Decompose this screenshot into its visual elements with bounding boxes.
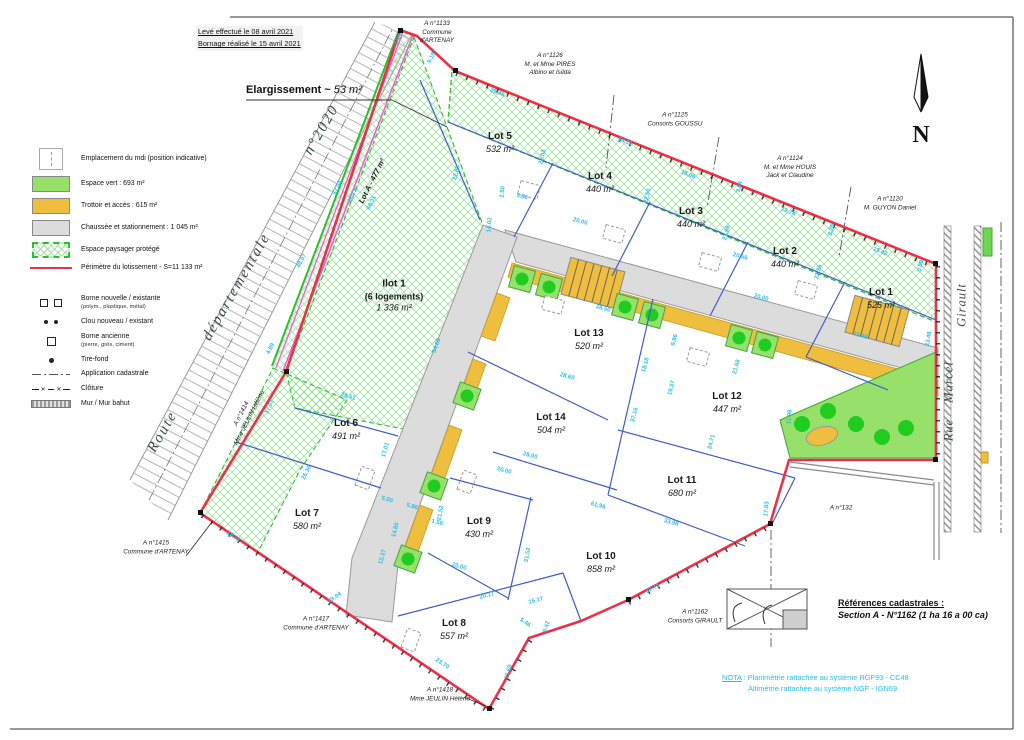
- legend-item-chaussee: Chaussée et stationnement : 1 045 m²: [30, 220, 230, 236]
- lot-label: Lot 6491 m²: [332, 418, 360, 442]
- clou-icon: [30, 320, 72, 324]
- mur-icon: [30, 400, 72, 408]
- legend: Emplacement du mdi (position indicative)…: [30, 148, 230, 408]
- dimension-label: 2.50: [500, 186, 507, 198]
- neighbor-parcel-label: A n°1162Consorts GIRAULT: [668, 608, 723, 625]
- elargissement-bold: Elargissement ~: [246, 84, 331, 96]
- tirefond-icon: [30, 358, 72, 363]
- legend-item-clou: Clou nouveau / existant: [30, 318, 230, 327]
- lot-label: Lot 2440 m²: [771, 246, 799, 270]
- lot-label: Lot 5532 m²: [486, 131, 514, 155]
- lot-label: Lot 7580 m²: [293, 508, 321, 532]
- mdi-swatch-icon: [39, 148, 63, 170]
- legend-item-trottoir: Trottoir et accès : 615 m²: [30, 198, 230, 214]
- lot-label: Lot 13520 m²: [574, 328, 603, 352]
- lot-label: Lot 4440 m²: [586, 171, 614, 195]
- legend-item-cloture: ✕✕ Clôture: [30, 385, 230, 394]
- lot-label: Lot 14504 m²: [536, 412, 565, 436]
- neighbor-parcel-label: A n°1120M. GUYON Daniel: [864, 195, 916, 212]
- elargissement-label: Elargissement ~ 53 m²: [246, 84, 362, 96]
- buildings: [727, 589, 807, 629]
- street-label-rue: Marcel: [942, 361, 957, 403]
- legend-item-paysager: Espace paysager protégé: [30, 242, 230, 258]
- gray-swatch-icon: [32, 220, 70, 236]
- lot-label: Lot 10858 m²: [586, 551, 615, 575]
- cadastral-references: Références cadastrales : Section A - N°1…: [838, 598, 988, 620]
- lot-label: Lot 3440 m²: [677, 206, 705, 230]
- protected-swatch-icon: [32, 242, 70, 258]
- lot-label: Lot 11680 m²: [668, 475, 697, 499]
- lot-label: Lot 1525 m²: [867, 287, 895, 311]
- north-arrow-icon: [914, 54, 928, 112]
- green-swatch-icon: [32, 176, 70, 192]
- lot-label: Lot 8557 m²: [440, 618, 468, 642]
- neighbor-parcel-label: A n°132: [830, 505, 853, 514]
- elargissement-area: 53 m²: [331, 84, 362, 96]
- references-title: Références cadastrales :: [838, 598, 988, 608]
- neighbor-parcel-label: A n°1415Commune d'ARTENAY: [123, 539, 189, 556]
- neighbor-parcel-label: A n°1418Mme JEULIN Hélène: [410, 686, 470, 703]
- lot-label: Lot 9430 m²: [465, 516, 493, 540]
- legend-item-application: Application cadastrale: [30, 370, 230, 379]
- red-line-icon: [30, 267, 72, 269]
- cloture-line-icon: ✕✕: [30, 386, 72, 393]
- street-label-rue: Rue: [942, 419, 957, 441]
- survey-note-line1: Levé effectué le 08 avril 2021: [196, 26, 303, 38]
- legend-item-perimetre: Périmètre du lotissement - S=11 133 m²: [30, 264, 230, 273]
- legend-item-borne-nouvelle: Borne nouvelle / existante(polym., plast…: [30, 295, 230, 312]
- cadastre-line-icon: [30, 374, 72, 375]
- plan-sheet: Levé effectué le 08 avril 2021 Bornage r…: [0, 0, 1024, 740]
- nota-note: NOTA : Planimétrie rattachée au système …: [722, 672, 909, 695]
- street-label-rue: Girault: [955, 283, 970, 327]
- borne-ancienne-icon: [30, 337, 72, 346]
- references-line: Section A - N°1162 (1 ha 16 a 00 ca): [838, 610, 988, 620]
- survey-note-line2: Bornage réalisé le 15 avril 2021: [196, 38, 303, 50]
- borne-nouvelle-icon: [30, 299, 72, 307]
- lot-label: Lot 12447 m²: [712, 391, 741, 415]
- legend-item-espace-vert: Espace vert : 693 m²: [30, 176, 230, 192]
- lot-label: Ilot 1(6 logements)1 336 m²: [365, 279, 424, 314]
- legend-item-mdi: Emplacement du mdi (position indicative): [30, 148, 230, 170]
- neighbor-parcel-label: A n°1126M. et Mme PIRESAlbino et Isilda: [524, 52, 575, 78]
- legend-item-tirefond: Tire-fond: [30, 356, 230, 365]
- north-label: N: [912, 122, 929, 149]
- yellow-swatch-icon: [32, 198, 70, 214]
- legend-item-mur: Mur / Mur bahut: [30, 400, 230, 409]
- neighbor-parcel-label: A n°1133Communed'ARTENAY: [420, 20, 454, 46]
- nota-label: NOTA: [722, 673, 742, 682]
- survey-notes: Levé effectué le 08 avril 2021 Bornage r…: [196, 26, 303, 51]
- neighbor-parcel-label: A n°1124M. et Mme HOUISJack et Claudine: [764, 155, 816, 181]
- dimension-label: 11.98: [786, 409, 793, 424]
- neighbor-parcel-label: A n°1417Commune d'ARTENAY: [283, 615, 349, 632]
- neighbor-parcel-label: A n°1125Consorts GOUSSU: [647, 111, 702, 128]
